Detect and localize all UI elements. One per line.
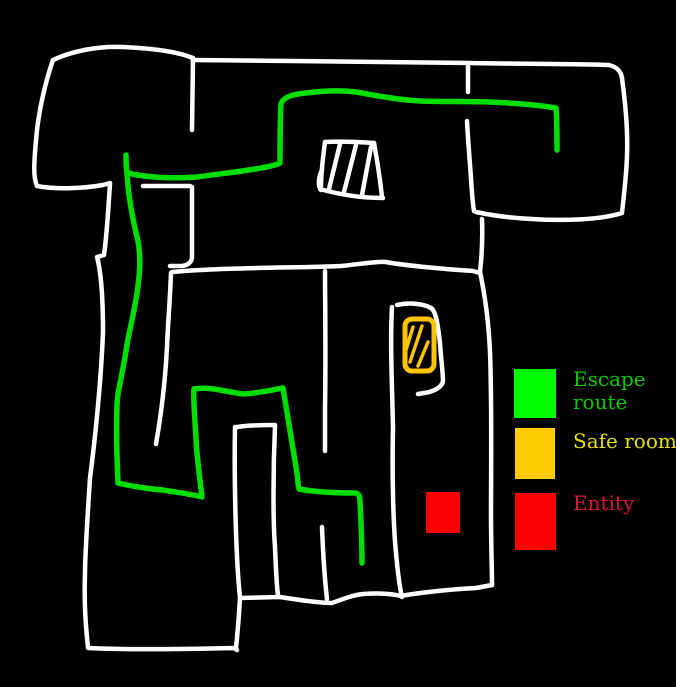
hatched-zone-hatch-3	[362, 147, 371, 195]
floor-plan-drawing	[0, 0, 676, 687]
safe-room-hatch-3	[418, 342, 428, 366]
wall-hooked-vertical	[170, 187, 192, 266]
legend-swatch-entity	[515, 493, 556, 550]
escape-route-stub	[126, 155, 127, 172]
hatched-zone-right	[374, 143, 382, 197]
legend-swatch-escape-route	[514, 369, 556, 418]
map-canvas: Escape route Safe room Entity	[0, 0, 676, 687]
entity-marker	[426, 492, 460, 533]
wall-column-right	[274, 426, 279, 595]
safe-room-marker	[405, 319, 434, 371]
hatched-zone-top	[325, 142, 374, 143]
wall-top-and-right	[193, 60, 627, 220]
wall-column-top	[237, 425, 275, 427]
hatched-zone-hatch-1	[329, 144, 340, 189]
wall-bottomleft-floor	[88, 648, 237, 650]
legend-label-safe-room: Safe room	[573, 430, 676, 453]
legend-label-entity: Entity	[573, 492, 634, 515]
wall-divider-upperleft	[192, 60, 193, 130]
legend-label-escape-route: Escape route	[573, 368, 651, 414]
hatched-zone-hatch-2	[344, 145, 356, 192]
wall-divider-midleft	[156, 273, 171, 444]
walls	[34, 47, 627, 650]
wall-column-left	[235, 427, 240, 648]
legend-swatch-safe-room	[515, 428, 555, 479]
wall-divider-center-b	[322, 527, 327, 599]
hatched-zone-marker	[319, 142, 383, 198]
wall-left-outer	[85, 184, 110, 647]
wall-topleft-room-left-bottom	[34, 60, 110, 188]
wall-topleft-room-top	[53, 47, 193, 60]
hatched-zone-left	[321, 142, 325, 186]
wall-saferoom-left	[391, 307, 402, 597]
wall-divider-top-b	[467, 121, 474, 211]
